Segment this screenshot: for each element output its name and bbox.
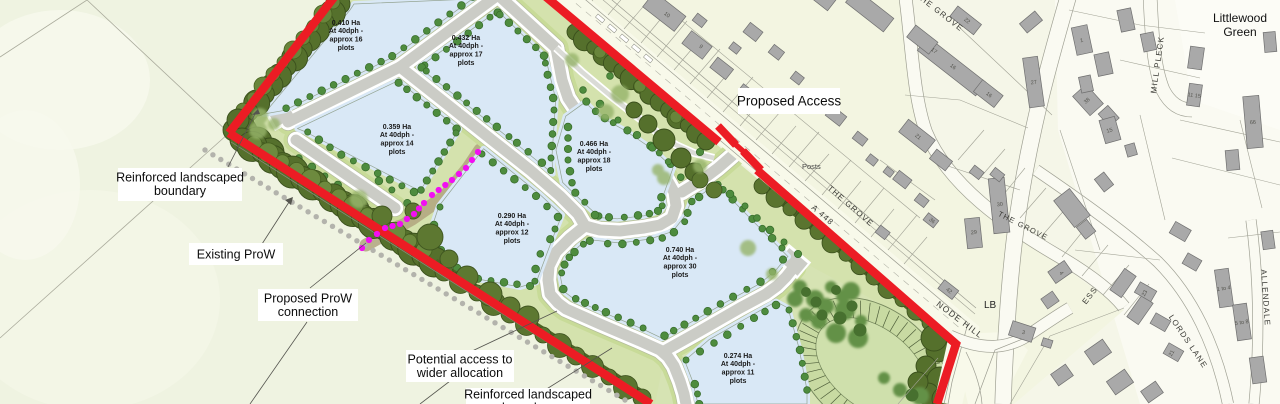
svg-text:Potential access to: Potential access to: [408, 353, 513, 367]
svg-text:At 40dph -: At 40dph -: [721, 361, 756, 368]
svg-text:connection: connection: [278, 305, 339, 319]
svg-text:At 40dph -: At 40dph -: [380, 132, 415, 139]
svg-text:29: 29: [971, 230, 978, 237]
svg-text:0.740 Ha: 0.740 Ha: [666, 247, 695, 254]
svg-text:30: 30: [997, 202, 1004, 209]
svg-text:approx 11: approx 11: [722, 370, 755, 377]
svg-text:Proposed Access: Proposed Access: [737, 94, 842, 109]
svg-text:plots: plots: [504, 238, 521, 245]
svg-text:approx 12: approx 12: [495, 230, 528, 237]
svg-text:plots: plots: [586, 166, 603, 173]
svg-text:plots: plots: [458, 60, 475, 67]
svg-text:boundary: boundary: [154, 184, 207, 198]
svg-text:At 40dph -: At 40dph -: [329, 28, 364, 35]
svg-text:27: 27: [1030, 80, 1037, 87]
svg-text:approx 18: approx 18: [577, 158, 610, 165]
svg-text:0.432 Ha: 0.432 Ha: [452, 35, 481, 42]
svg-text:wider allocation: wider allocation: [416, 366, 503, 380]
svg-text:0.274 Ha: 0.274 Ha: [724, 353, 753, 360]
svg-text:plots: plots: [338, 45, 355, 52]
svg-text:At 40dph -: At 40dph -: [663, 255, 698, 262]
svg-text:approx 14: approx 14: [380, 141, 413, 148]
svg-text:66: 66: [1250, 120, 1257, 127]
svg-text:At 40dph -: At 40dph -: [495, 221, 530, 228]
svg-text:Reinforced landscaped: Reinforced landscaped: [464, 388, 592, 402]
svg-text:approx 17: approx 17: [449, 52, 482, 59]
svg-text:0.290 Ha: 0.290 Ha: [498, 213, 527, 220]
svg-text:LB: LB: [984, 300, 997, 311]
svg-text:plots: plots: [672, 272, 689, 279]
svg-text:Reinforced landscaped: Reinforced landscaped: [116, 171, 244, 185]
svg-text:Posts: Posts: [802, 162, 821, 171]
svg-text:At 40dph -: At 40dph -: [577, 149, 612, 156]
svg-text:0.410 Ha: 0.410 Ha: [332, 20, 361, 27]
svg-text:approx 16: approx 16: [329, 37, 362, 44]
svg-text:At 40dph -: At 40dph -: [449, 43, 484, 50]
svg-text:Littlewood: Littlewood: [1213, 11, 1267, 25]
svg-text:Existing ProW: Existing ProW: [197, 247, 276, 261]
svg-text:Proposed ProW: Proposed ProW: [264, 292, 352, 306]
svg-text:Green: Green: [1223, 25, 1256, 39]
svg-text:plots: plots: [389, 149, 406, 156]
svg-text:0.359 Ha: 0.359 Ha: [383, 124, 412, 131]
svg-text:approx 30: approx 30: [663, 264, 696, 271]
svg-text:plots: plots: [730, 378, 747, 385]
svg-text:0.466 Ha: 0.466 Ha: [580, 141, 609, 148]
